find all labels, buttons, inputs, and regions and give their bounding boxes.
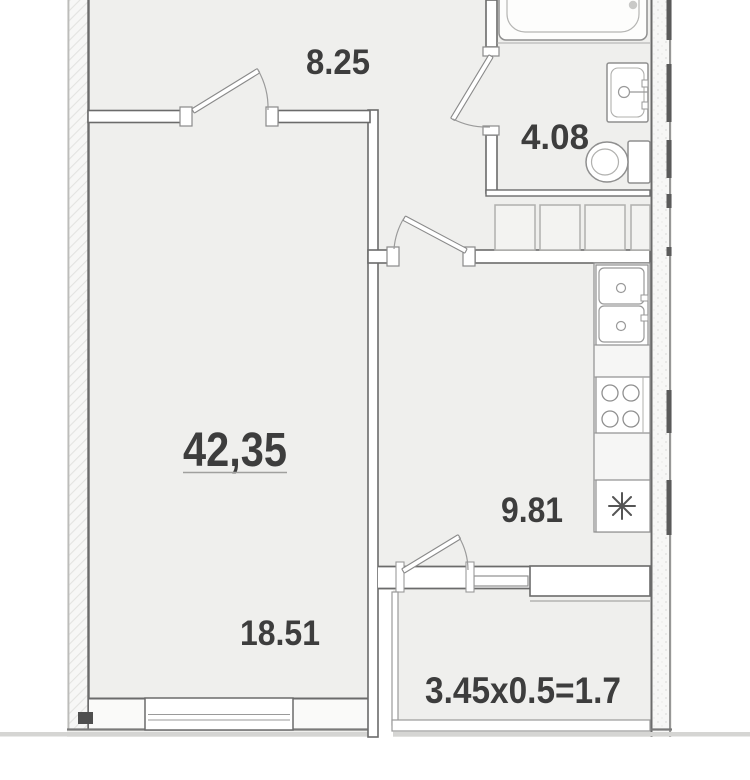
floor-plan-drawing: 8.25 4.08 42,35 9.81 18.51 3.45x0.5=1.7 (0, 0, 750, 780)
bathroom-area-label: 4.08 (521, 118, 589, 157)
toilet-icon (586, 141, 650, 183)
kitchen-area-label: 9.81 (501, 491, 563, 530)
bathtub-icon (497, 0, 650, 43)
double-sink-icon (596, 265, 648, 345)
refrigerator-icon (596, 480, 650, 532)
balcony-area-label: 3.45x0.5=1.7 (425, 670, 621, 711)
living-room-area-label: 18.51 (240, 614, 320, 653)
outer-right-wall (651, 0, 672, 737)
sink-icon (607, 63, 648, 122)
outer-left-wall (68, 0, 89, 730)
living-room-window (145, 698, 293, 730)
stove-icon (596, 377, 650, 433)
hallway-area-label: 8.25 (306, 43, 370, 82)
floor-plan: 8.25 4.08 42,35 9.81 18.51 3.45x0.5=1.7 (0, 0, 750, 780)
total-area-label: 42,35 (183, 424, 287, 477)
